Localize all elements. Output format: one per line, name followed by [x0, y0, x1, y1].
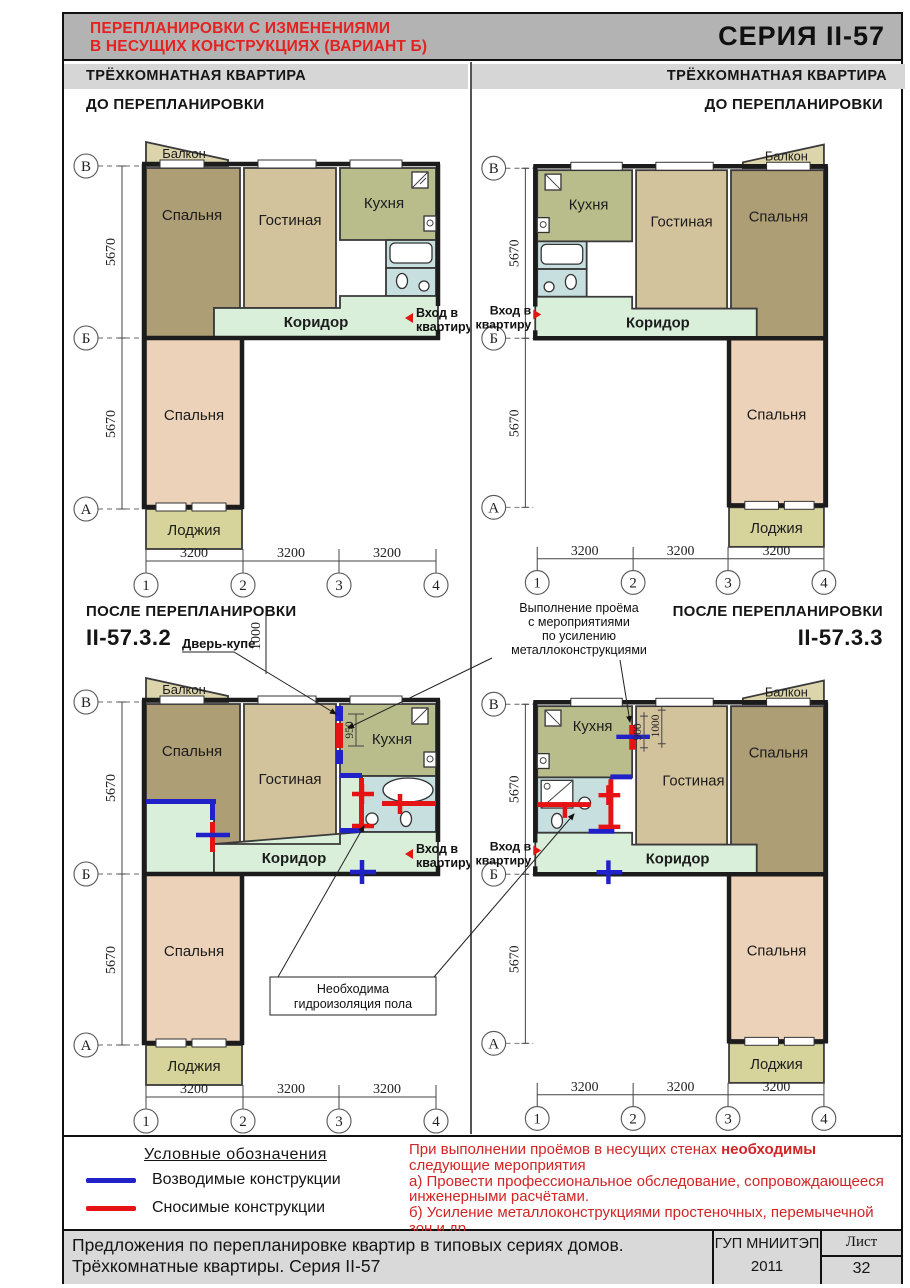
svg-text:2: 2 [239, 1114, 247, 1130]
svg-text:Б: Б [489, 867, 498, 883]
legend-new-label: Возводимые конструкции [152, 1171, 341, 1189]
svg-text:2: 2 [629, 575, 636, 591]
new-closet-area [146, 802, 214, 874]
legend-item-new: Возводимые конструкции [86, 1171, 341, 1189]
svg-text:3200: 3200 [373, 1082, 401, 1097]
svg-text:А: А [488, 1036, 499, 1052]
svg-text:4: 4 [820, 575, 828, 591]
bathtub-icon [383, 778, 433, 802]
title-block-main: Предложения по перепланировке квартир в … [64, 1231, 714, 1284]
svg-text:3: 3 [724, 1111, 731, 1127]
svg-text:Б: Б [82, 867, 91, 883]
svg-text:Кухня: Кухня [573, 719, 613, 735]
svg-text:3200: 3200 [277, 546, 305, 561]
svg-text:Спальня: Спальня [162, 207, 222, 224]
plan-code-right: II-57.3.3 [798, 625, 883, 651]
plan-after-left: 950 В Б А 5670 5670 3200 3200 3200 [64, 654, 470, 1139]
svg-text:3200: 3200 [180, 546, 208, 561]
svg-text:Спальня: Спальня [164, 407, 224, 424]
svg-text:5670: 5670 [506, 239, 521, 267]
svg-text:В: В [489, 697, 499, 713]
svg-text:Коридор: Коридор [262, 850, 327, 867]
svg-text:950: 950 [344, 721, 356, 739]
svg-text:3200: 3200 [180, 1082, 208, 1097]
svg-text:5670: 5670 [104, 410, 119, 438]
note-item-a1: а) Провести профессиональное обследовани… [409, 1174, 901, 1190]
header-title-line2: В НЕСУЩИХ КОНСТРУКЦИЯХ (ВАРИАНТ Б) [90, 38, 427, 56]
svg-text:Кухня: Кухня [372, 731, 412, 748]
sheet-number: 32 [822, 1257, 901, 1278]
svg-text:3200: 3200 [667, 1079, 695, 1094]
svg-text:В: В [489, 161, 499, 177]
new-walls-swatch [86, 1178, 136, 1183]
svg-text:Коридор: Коридор [284, 314, 349, 331]
svg-text:3200: 3200 [763, 543, 791, 558]
svg-text:4: 4 [432, 1114, 440, 1130]
svg-text:3200: 3200 [277, 1082, 305, 1097]
svg-text:3200: 3200 [571, 543, 599, 558]
footer-title-line1: Предложения по перепланировке квартир в … [72, 1235, 704, 1256]
svg-text:5670: 5670 [506, 409, 521, 437]
svg-text:1: 1 [534, 1111, 541, 1127]
svg-text:1: 1 [142, 1114, 150, 1130]
svg-text:3200: 3200 [667, 543, 695, 558]
svg-text:Б: Б [82, 331, 91, 347]
before-label-left: ДО ПЕРЕПЛАНИРОВКИ [86, 93, 264, 117]
new-wall-mark [336, 750, 343, 764]
note-line1-bold: необходимы [721, 1141, 816, 1158]
title-block-sheet: Лист 32 [822, 1231, 901, 1284]
new-wall-mark [336, 706, 343, 721]
svg-text:Гостиная: Гостиная [650, 215, 712, 231]
building-mirrored [533, 680, 828, 1082]
left-apartment-band: ТРЁХКОМНАТНАЯ КВАРТИРА [64, 64, 468, 89]
sink-icon [424, 752, 436, 767]
svg-text:Гостиная: Гостиная [662, 773, 724, 789]
svg-text:2: 2 [629, 1111, 636, 1127]
plan-after-right: 900 1000 В Б А 5670 5670 3200 3200 3200 … [470, 654, 905, 1139]
svg-text:Спальня: Спальня [162, 743, 222, 760]
svg-text:Вход в: Вход в [490, 840, 532, 854]
sheet-label: Лист [822, 1231, 901, 1257]
svg-text:В: В [81, 159, 91, 175]
after-label-left: ПОСЛЕ ПЕРЕПЛАНИРОВКИ [86, 603, 296, 620]
wc-area [386, 268, 436, 296]
svg-text:3200: 3200 [763, 1079, 791, 1094]
svg-text:А: А [488, 500, 499, 516]
svg-text:5670: 5670 [506, 945, 521, 973]
demolished-opening-mark [336, 723, 343, 748]
svg-text:квартиру: квартиру [476, 317, 532, 331]
svg-text:3: 3 [724, 575, 731, 591]
svg-text:4: 4 [432, 578, 440, 594]
sliding-door-label: Дверь-купе [182, 636, 255, 651]
svg-text:Балкон: Балкон [162, 146, 206, 161]
svg-text:1000: 1000 [650, 714, 662, 737]
svg-text:Б: Б [489, 331, 498, 347]
svg-text:3: 3 [335, 1114, 343, 1130]
svg-text:по усилению: по усилению [542, 629, 616, 643]
svg-text:5670: 5670 [506, 775, 521, 803]
svg-text:3: 3 [335, 578, 343, 594]
svg-text:5670: 5670 [104, 946, 119, 974]
svg-text:Лоджия: Лоджия [750, 1057, 802, 1073]
toilet-icon [397, 274, 408, 289]
svg-text:А: А [81, 1038, 92, 1054]
title-block: Предложения по перепланировке квартир в … [64, 1231, 901, 1284]
legend-demolished-label: Сносимые конструкции [152, 1199, 325, 1217]
svg-text:Лоджия: Лоджия [167, 522, 220, 539]
svg-text:А: А [81, 502, 92, 518]
note-line2: следующие мероприятия [409, 1158, 901, 1174]
svg-text:Балкон: Балкон [765, 148, 808, 163]
svg-text:Коридор: Коридор [626, 315, 690, 331]
before-label-right: ДО ПЕРЕПЛАНИРОВКИ [705, 93, 883, 117]
svg-text:Кухня: Кухня [364, 195, 404, 212]
sheet: ПЕРЕПЛАНИРОВКИ С ИЗМЕНЕНИЯМИ В НЕСУЩИХ К… [0, 0, 910, 1288]
note-item-b1: б) Усиление металлоконструкциями простен… [409, 1205, 901, 1221]
svg-text:квартиру: квартиру [416, 320, 470, 334]
header-title-line1: ПЕРЕПЛАНИРОВКИ С ИЗМЕНЕНИЯМИ [90, 20, 390, 38]
toilet-icon [552, 813, 563, 828]
svg-text:3200: 3200 [571, 1079, 599, 1094]
sink-icon [424, 216, 436, 231]
footer-year: 2011 [714, 1258, 820, 1275]
svg-text:Лоджия: Лоджия [750, 521, 802, 537]
svg-text:900: 900 [632, 723, 644, 740]
svg-text:1: 1 [142, 578, 150, 594]
series-title: СЕРИЯ II-57 [718, 21, 885, 52]
svg-text:Выполнение проёма: Выполнение проёма [519, 601, 638, 615]
plan-before-left: В Б А 5670 5670 3200 3200 3200 1 2 3 4 Б… [64, 118, 470, 603]
svg-text:3200: 3200 [373, 546, 401, 561]
after-label-right: ПОСЛЕ ПЕРЕПЛАНИРОВКИ [673, 603, 883, 620]
footer-title-line2: Трёхкомнатные квартиры. Серия II-57 [72, 1256, 704, 1277]
svg-text:с мероприятиями: с мероприятиями [528, 615, 630, 629]
legend-title: Условные обозначения [144, 1146, 327, 1164]
svg-text:Гостиная: Гостиная [259, 771, 322, 788]
plan-code-left: II-57.3.2 [86, 625, 171, 651]
svg-text:Лоджия: Лоджия [167, 1058, 220, 1075]
svg-text:Балкон: Балкон [765, 684, 808, 699]
washbasin-icon [366, 813, 378, 825]
svg-text:5670: 5670 [104, 774, 119, 802]
svg-text:Вход в: Вход в [416, 842, 458, 856]
living-area [244, 168, 336, 308]
svg-text:Спальня: Спальня [164, 943, 224, 960]
washbasin-icon [419, 281, 429, 291]
svg-text:Спальня: Спальня [749, 746, 809, 762]
svg-text:2: 2 [239, 578, 247, 594]
right-apartment-band: ТРЁХКОМНАТНАЯ КВАРТИРА [472, 64, 905, 89]
bathtub-icon [390, 243, 432, 263]
svg-text:Спальня: Спальня [747, 407, 807, 423]
new-wall-mark [146, 799, 216, 804]
svg-text:4: 4 [820, 1111, 828, 1127]
svg-text:квартиру: квартиру [416, 856, 470, 870]
svg-text:Вход в: Вход в [490, 304, 532, 318]
footer-organization: ГУП МНИИТЭП [714, 1236, 820, 1252]
demolished-walls-swatch [86, 1206, 136, 1211]
svg-text:Балкон: Балкон [162, 682, 206, 697]
drawing-frame: ПЕРЕПЛАНИРОВКИ С ИЗМЕНЕНИЯМИ В НЕСУЩИХ К… [62, 12, 903, 1284]
svg-text:1: 1 [534, 575, 541, 591]
legend-section: Условные обозначения Возводимые конструк… [64, 1135, 901, 1231]
svg-text:Вход в: Вход в [416, 306, 458, 320]
legend-item-demolished: Сносимые конструкции [86, 1199, 325, 1217]
svg-text:Кухня: Кухня [569, 198, 609, 214]
note-item-a2: инженерными расчётами. [409, 1189, 901, 1205]
svg-text:В: В [81, 695, 91, 711]
note-line1: При выполнении проёмов в несущих стенах [409, 1141, 721, 1158]
svg-text:Коридор: Коридор [646, 851, 710, 867]
title-block-org: ГУП МНИИТЭП 2011 [714, 1231, 822, 1284]
svg-text:квартиру: квартиру [476, 853, 532, 867]
svg-text:Спальня: Спальня [747, 943, 807, 959]
dim-1000-left: 1000 [249, 622, 264, 650]
red-note: При выполнении проёмов в несущих стенах … [409, 1142, 901, 1237]
svg-text:Гостиная: Гостиная [259, 212, 322, 229]
svg-text:Спальня: Спальня [749, 210, 809, 226]
header-band: ПЕРЕПЛАНИРОВКИ С ИЗМЕНЕНИЯМИ В НЕСУЩИХ К… [64, 14, 901, 61]
svg-text:5670: 5670 [104, 238, 119, 266]
plan-before-right: В Б А 5670 5670 3200 3200 3200 1 2 3 4 Б… [470, 118, 905, 603]
